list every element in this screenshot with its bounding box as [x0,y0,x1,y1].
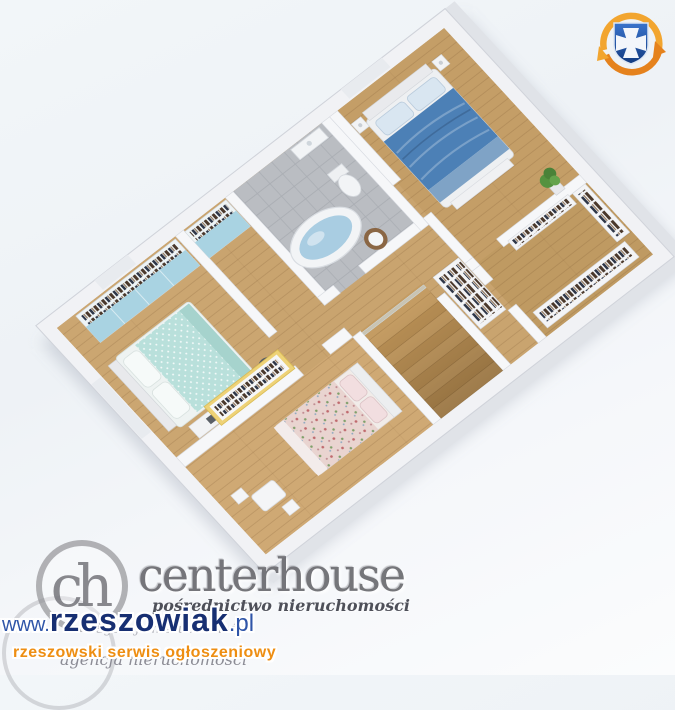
listing-photo: ch centerhouse pośrednictwo nieruchomośc… [0,0,675,675]
rzeszow-crest-logo [596,8,666,78]
floorplan-svg [0,0,675,675]
building [30,1,675,589]
